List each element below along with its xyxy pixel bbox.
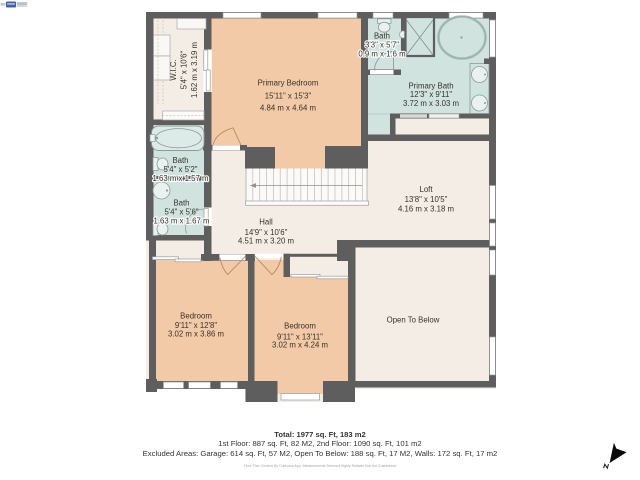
svg-text:13'8" x 10'5": 13'8" x 10'5"	[405, 195, 448, 204]
svg-text:W.I.C.: W.I.C.	[169, 59, 178, 80]
svg-text:15'11" x 15'3": 15'11" x 15'3"	[265, 92, 312, 101]
svg-text:3.72 m x 3.03 m: 3.72 m x 3.03 m	[403, 99, 459, 108]
svg-text:Bath: Bath	[173, 199, 189, 208]
svg-text:Open To Below: Open To Below	[387, 316, 440, 325]
svg-text:5'4" x 10'6": 5'4" x 10'6"	[180, 51, 189, 90]
svg-text:12'3" x 9'11": 12'3" x 9'11"	[410, 90, 452, 99]
svg-text:4.84 m x 4.64 m: 4.84 m x 4.64 m	[260, 104, 316, 113]
svg-text:Bath: Bath	[374, 32, 390, 41]
svg-text:Primary Bedroom: Primary Bedroom	[258, 79, 319, 88]
svg-text:0.9 m x 1.6 m: 0.9 m x 1.6 m	[358, 50, 405, 59]
svg-text:1.63 m x 1.67 m: 1.63 m x 1.67 m	[154, 217, 210, 226]
svg-text:5'4" x 5'6": 5'4" x 5'6"	[164, 208, 198, 217]
svg-text:Bath: Bath	[172, 156, 188, 165]
svg-text:1st Floor: 887 sq. Ft, 82 M2,: 1st Floor: 887 sq. Ft, 82 M2, 2nd Floor:…	[218, 439, 421, 448]
svg-text:Loft: Loft	[419, 185, 433, 194]
svg-text:4.51 m x 3.20 m: 4.51 m x 3.20 m	[238, 237, 294, 246]
svg-text:Floor Plan Created By Cubicasa: Floor Plan Created By Cubicasa App. Meas…	[244, 464, 397, 468]
svg-text:4.16 m x 3.18 m: 4.16 m x 3.18 m	[398, 205, 454, 214]
svg-text:3.02 m x 3.86 m: 3.02 m x 3.86 m	[168, 330, 224, 339]
svg-text:1.63 m x 1.57 m: 1.63 m x 1.57 m	[153, 174, 209, 183]
svg-text:Bedroom: Bedroom	[284, 322, 316, 331]
svg-text:1.62 m x 3.19 m: 1.62 m x 3.19 m	[190, 42, 199, 98]
svg-text:Excluded Areas: Garage: 614 sq: Excluded Areas: Garage: 614 sq. Ft, 57 M…	[143, 449, 498, 458]
svg-text:Bedroom: Bedroom	[180, 312, 212, 321]
svg-text:Total: 1977 sq. Ft, 183 m2: Total: 1977 sq. Ft, 183 m2	[274, 430, 365, 439]
svg-text:Hall: Hall	[259, 218, 273, 227]
svg-text:3.02 m x 4.24 m: 3.02 m x 4.24 m	[272, 341, 328, 350]
svg-text:5'4" x 5'2": 5'4" x 5'2"	[163, 165, 197, 174]
svg-text:3'3" x 5'7": 3'3" x 5'7"	[365, 41, 399, 50]
